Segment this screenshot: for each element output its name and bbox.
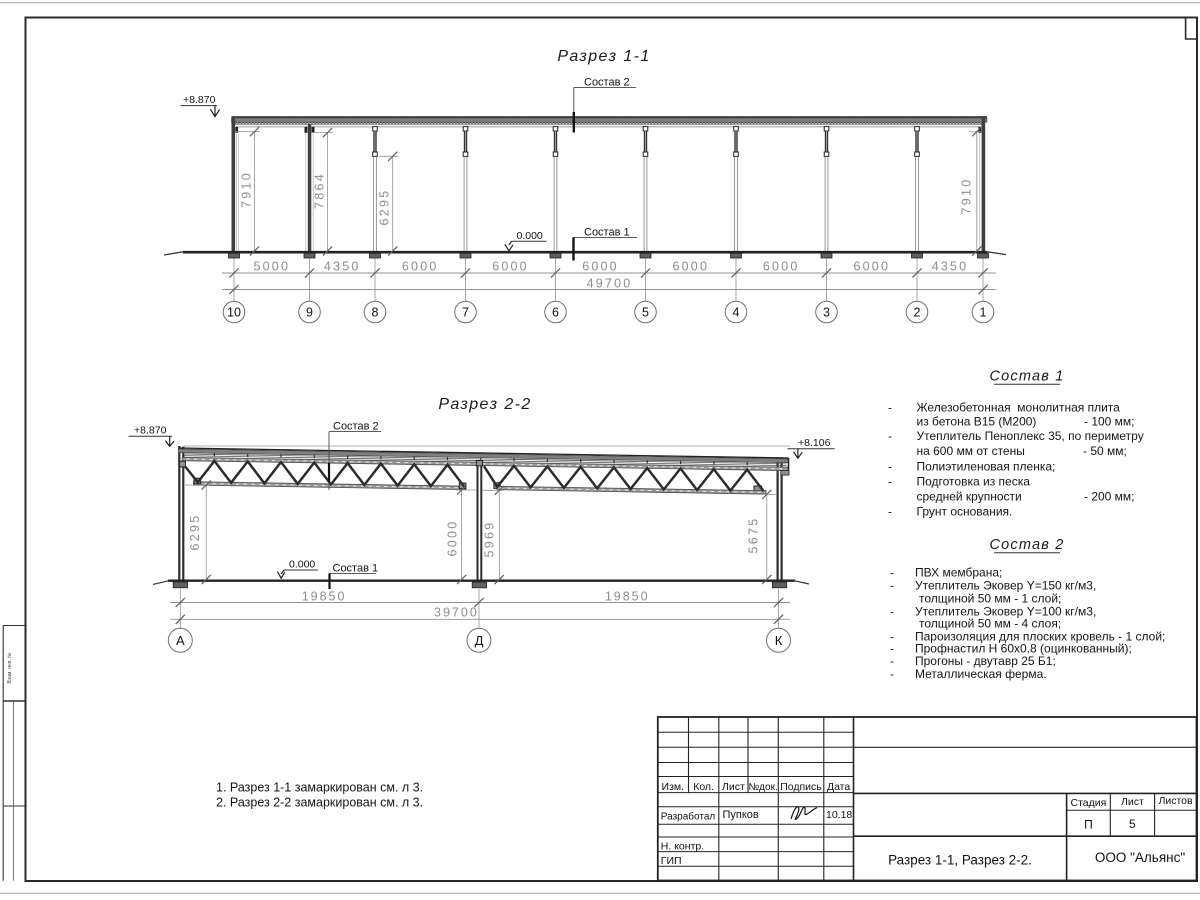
svg-text:-: - <box>890 579 894 593</box>
svg-text:6000: 6000 <box>853 260 890 274</box>
svg-text:Разрез 1-1: Разрез 1-1 <box>557 48 650 65</box>
svg-text:ООО "Альянс": ООО "Альянс" <box>1095 850 1185 865</box>
svg-text:0.000: 0.000 <box>289 558 315 570</box>
svg-text:6000: 6000 <box>492 260 529 274</box>
svg-text:Дата: Дата <box>827 781 850 793</box>
svg-text:-: - <box>888 505 892 519</box>
svg-text:на 600 мм от стены: на 600 мм от стены <box>917 444 1025 458</box>
svg-text:Д: Д <box>475 633 484 648</box>
svg-text:6295: 6295 <box>188 513 202 550</box>
svg-text:6: 6 <box>552 305 559 319</box>
svg-text:-: - <box>890 566 894 580</box>
svg-text:3: 3 <box>823 305 830 319</box>
svg-text:8: 8 <box>372 305 379 319</box>
svg-text:39700: 39700 <box>434 606 479 620</box>
svg-text:- 50 мм;: - 50 мм; <box>1083 444 1127 458</box>
svg-text:Лист: Лист <box>1121 796 1144 808</box>
svg-text:Состав 2: Состав 2 <box>584 77 630 89</box>
svg-text:1: 1 <box>980 305 987 319</box>
svg-text:2. Разрез 2-2 замаркирован см.: 2. Разрез 2-2 замаркирован см. л 3. <box>216 796 423 810</box>
svg-text:Подпись: Подпись <box>780 781 822 793</box>
svg-text:Изм.: Изм. <box>662 781 685 793</box>
svg-text:Прогоны - двутавр 25 Б1;: Прогоны - двутавр 25 Б1; <box>915 654 1056 668</box>
svg-text:6000: 6000 <box>582 260 619 274</box>
svg-text:7864: 7864 <box>313 172 327 209</box>
svg-text:Железобетонная монолитная пли: Железобетонная монолитная плита <box>917 401 1121 415</box>
svg-text:4350: 4350 <box>932 260 969 274</box>
svg-text:-: - <box>888 401 892 415</box>
svg-text:- 200 мм;: - 200 мм; <box>1084 490 1135 504</box>
svg-text:+8.106: +8.106 <box>798 437 831 449</box>
svg-text:Состав 1: Состав 1 <box>333 562 379 574</box>
svg-text:7910: 7910 <box>240 171 254 208</box>
svg-text:6000: 6000 <box>672 260 709 274</box>
svg-text:Лист: Лист <box>722 781 745 793</box>
svg-text:К: К <box>775 633 783 648</box>
svg-text:Утеплитель Эковер Y=150 кг/м3,: Утеплитель Эковер Y=150 кг/м3, <box>915 579 1096 593</box>
svg-text:Состав 1: Состав 1 <box>584 227 630 239</box>
svg-text:Кол.: Кол. <box>693 781 714 793</box>
svg-text:Полиэтиленовая пленка;: Полиэтиленовая пленка; <box>917 459 1056 473</box>
svg-text:Состав 2: Состав 2 <box>989 537 1064 553</box>
svg-text:средней крупности: средней крупности <box>917 490 1022 504</box>
svg-text:5: 5 <box>642 305 649 319</box>
svg-text:П: П <box>1084 818 1093 832</box>
svg-text:ГИП: ГИП <box>661 855 682 867</box>
svg-text:Подготовка из песка: Подготовка из песка <box>917 475 1031 489</box>
svg-text:- 100 мм;: - 100 мм; <box>1084 415 1135 429</box>
svg-text:Пупков: Пупков <box>723 809 759 821</box>
svg-text:6000: 6000 <box>445 519 459 556</box>
svg-text:0.000: 0.000 <box>517 230 543 242</box>
svg-text:А: А <box>176 633 185 648</box>
svg-text:ПВХ мембрана;: ПВХ мембрана; <box>915 566 1002 580</box>
svg-text:-: - <box>890 605 894 619</box>
svg-text:5000: 5000 <box>253 260 290 274</box>
svg-text:Разрез 1-1, Разрез 2-2.: Разрез 1-1, Разрез 2-2. <box>888 853 1032 868</box>
svg-text:6295: 6295 <box>378 188 392 225</box>
svg-text:-: - <box>890 667 894 681</box>
svg-text:6000: 6000 <box>763 260 800 274</box>
svg-text:Утеплитель Пеноплекс 35, по пе: Утеплитель Пеноплекс 35, по периметру <box>917 429 1144 443</box>
svg-text:Стадия: Стадия <box>1071 797 1107 809</box>
svg-text:7: 7 <box>462 305 469 319</box>
svg-text:толщиной 50 мм - 1 слой;: толщиной 50 мм - 1 слой; <box>919 592 1061 606</box>
svg-text:-: - <box>888 459 892 473</box>
svg-text:+8.870: +8.870 <box>134 425 167 437</box>
svg-text:Состав 1: Состав 1 <box>989 369 1064 385</box>
svg-text:5969: 5969 <box>483 520 497 557</box>
svg-text:5: 5 <box>1129 817 1136 831</box>
svg-text:Грунт основания.: Грунт основания. <box>917 505 1013 519</box>
svg-text:7910: 7910 <box>960 177 974 214</box>
svg-text:Разработал: Разработал <box>661 810 716 822</box>
svg-text:4350: 4350 <box>324 260 361 274</box>
svg-text:19850: 19850 <box>605 589 650 603</box>
svg-text:9: 9 <box>306 305 313 319</box>
svg-text:Разрез 2-2: Разрез 2-2 <box>438 396 531 413</box>
svg-text:Взам. инв. №: Взам. инв. № <box>7 653 13 684</box>
svg-text:№док.: №док. <box>748 782 777 793</box>
svg-text:-: - <box>888 429 892 443</box>
svg-text:1. Разрез 1-1 замаркирован см.: 1. Разрез 1-1 замаркирован см. л 3. <box>216 781 423 795</box>
svg-text:Листов: Листов <box>1158 795 1193 807</box>
svg-text:5675: 5675 <box>746 516 760 553</box>
svg-text:из бетона В15 (М200): из бетона В15 (М200) <box>917 415 1037 429</box>
svg-text:6000: 6000 <box>402 260 439 274</box>
svg-text:49700: 49700 <box>587 276 633 290</box>
svg-text:-: - <box>888 475 892 489</box>
svg-text:10: 10 <box>227 305 241 319</box>
svg-text:Н. контр.: Н. контр. <box>661 841 704 853</box>
svg-text:Металлическая ферма.: Металлическая ферма. <box>915 667 1047 681</box>
svg-text:+8.870: +8.870 <box>183 94 216 106</box>
svg-text:-: - <box>890 654 894 668</box>
svg-text:10.18: 10.18 <box>826 809 852 821</box>
svg-text:19850: 19850 <box>302 589 347 603</box>
svg-text:Состав 2: Состав 2 <box>333 421 379 433</box>
svg-text:2: 2 <box>914 305 921 319</box>
svg-text:4: 4 <box>733 305 740 319</box>
